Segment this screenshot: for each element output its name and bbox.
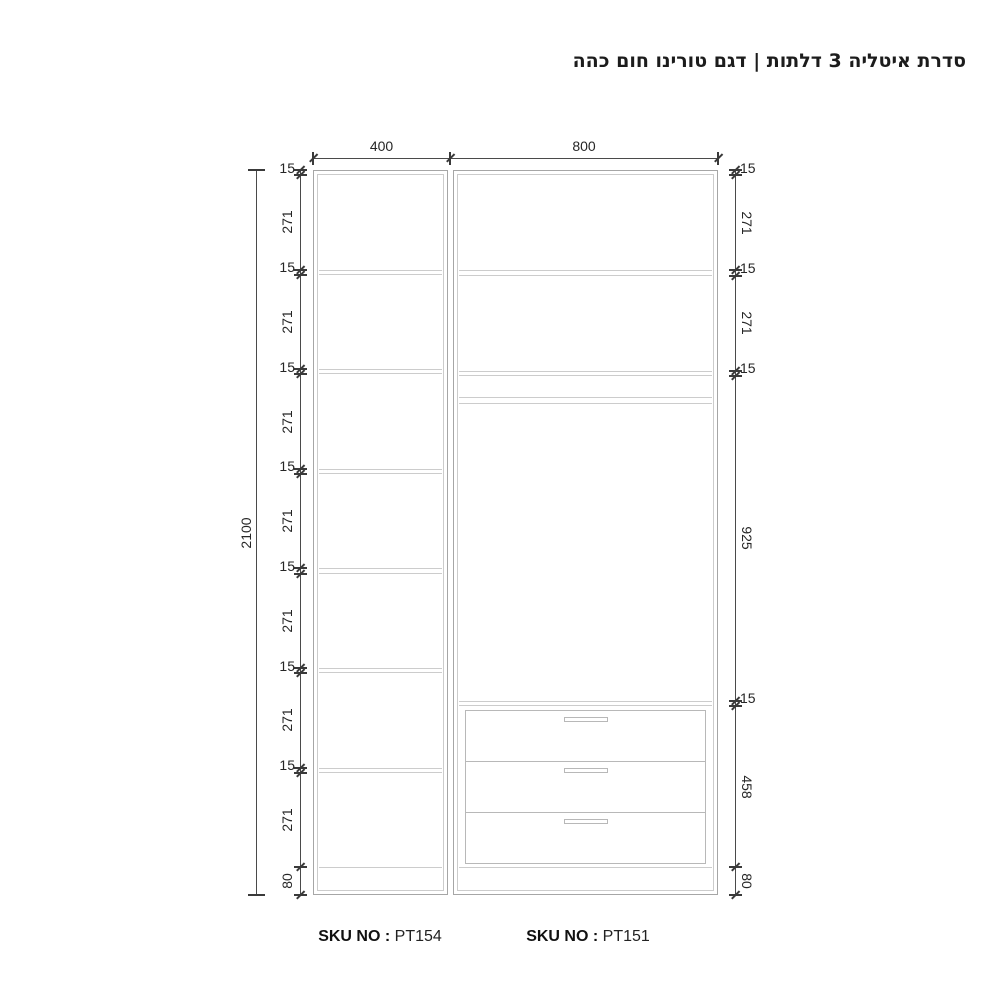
- dimension-line: [300, 170, 301, 895]
- dimension-label: 15: [251, 360, 295, 374]
- dimension-label: 15: [740, 261, 756, 275]
- drawer-handle: [564, 717, 608, 722]
- dimension-label: 271: [740, 211, 754, 234]
- dimension-label: 15: [251, 559, 295, 573]
- drawer-handle: [564, 819, 608, 824]
- dimension-label: 271: [280, 808, 294, 831]
- plinth-line: [319, 867, 442, 868]
- sku-label: SKU NO :: [526, 928, 598, 945]
- dimension-label: 2100: [239, 517, 253, 548]
- shelf: [319, 568, 442, 573]
- page-title: סדרת איטליה 3 דלתות | דגם טורינו חום כהה: [573, 50, 966, 72]
- dimension-label: 271: [280, 609, 294, 632]
- dimension-endcap: [248, 894, 265, 896]
- shelf: [459, 270, 712, 275]
- dimension-label: 15: [251, 459, 295, 473]
- dimension-label: 800: [572, 139, 595, 153]
- dimension-label: 271: [280, 709, 294, 732]
- dimension-label: 400: [370, 139, 393, 153]
- drawer-handle: [564, 768, 608, 773]
- dimension-label: 15: [251, 758, 295, 772]
- plinth-line: [459, 867, 712, 868]
- shelf: [319, 469, 442, 474]
- shelf: [319, 768, 442, 773]
- shelf: [319, 668, 442, 673]
- shelf: [459, 701, 712, 706]
- dimension-label: 458: [740, 775, 754, 798]
- hanging-rod: [459, 397, 712, 404]
- sku-left-cabinet: SKU NO : PT154: [318, 928, 442, 946]
- sku-value: PT154: [395, 928, 442, 945]
- dimension-label: 271: [280, 410, 294, 433]
- wardrobe-spec-sheet: סדרת איטליה 3 דלתות | דגם טורינו חום כהה…: [0, 0, 1000, 1000]
- dimension-label: 80: [740, 873, 754, 889]
- dimension-label: 15: [740, 361, 756, 375]
- dimension-label: 15: [251, 260, 295, 274]
- dimension-label: 271: [740, 312, 754, 335]
- dimension-label: 271: [280, 310, 294, 333]
- shelf: [319, 369, 442, 374]
- sku-label: SKU NO :: [318, 928, 390, 945]
- dimension-label: 15: [251, 659, 295, 673]
- sku-value: PT151: [603, 928, 650, 945]
- dimension-label: 80: [280, 873, 294, 889]
- dimension-line: [313, 158, 718, 159]
- sku-right-cabinet: SKU NO : PT151: [526, 928, 650, 946]
- dimension-label: 925: [740, 527, 754, 550]
- dimension-line: [256, 170, 257, 895]
- dimension-label: 15: [740, 161, 756, 175]
- shelf: [319, 270, 442, 275]
- shelf: [459, 371, 712, 376]
- dimension-line: [735, 170, 736, 895]
- dimension-label: 15: [251, 161, 295, 175]
- dimension-label: 271: [280, 509, 294, 532]
- cabinet-inner-frame-left: [317, 174, 444, 891]
- dimension-label: 271: [280, 211, 294, 234]
- dimension-label: 15: [740, 691, 756, 705]
